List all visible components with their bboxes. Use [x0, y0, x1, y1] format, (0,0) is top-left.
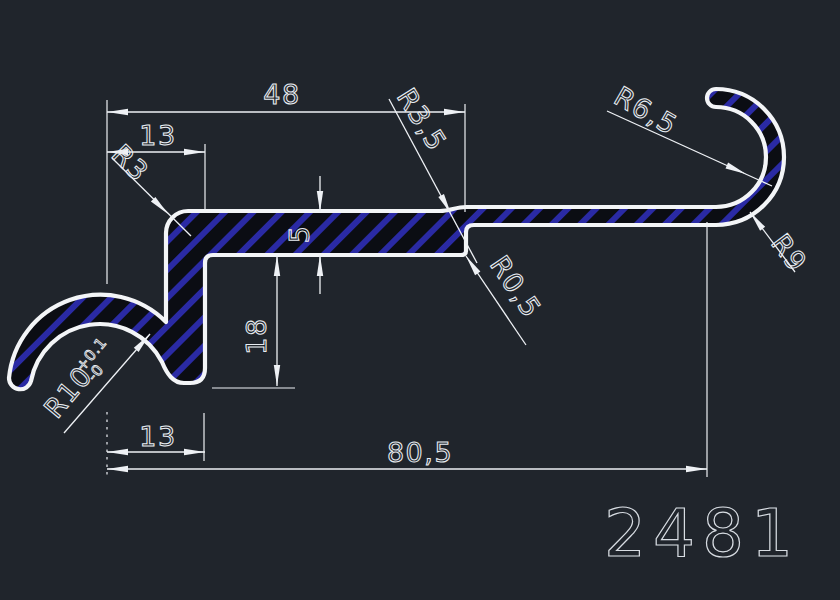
arrowhead [726, 163, 748, 177]
arrowhead [274, 365, 280, 386]
dimension-18[interactable]: 18 [241, 255, 280, 386]
arrowhead [463, 254, 480, 275]
radius-r9[interactable]: R9 [747, 210, 813, 278]
arrowhead [317, 255, 323, 276]
arrowhead [184, 449, 205, 455]
radius-r10[interactable]: R10 +0.1 -0 [38, 332, 153, 433]
arrowhead [184, 149, 205, 155]
dim-13-top-label: 13 [139, 120, 176, 151]
dim-5-label: 5 [284, 225, 315, 244]
dimension-13-bottom[interactable]: 13 [107, 421, 205, 455]
cad-drawing-canvas[interactable]: 48 13 5 18 13 80,5 R3 [0, 0, 840, 600]
leader-line [607, 111, 772, 186]
dim-48-label: 48 [263, 79, 300, 110]
part-number: 2481 [604, 495, 800, 572]
arrowhead [151, 197, 170, 216]
dim-18-label: 18 [241, 317, 272, 354]
radius-r6-5-label: R6,5 [609, 80, 683, 141]
dimension-80-5[interactable]: 80,5 [107, 437, 707, 472]
dim-80-5-label: 80,5 [387, 437, 453, 468]
arrowhead [274, 255, 280, 276]
arrowhead [444, 109, 465, 115]
arrowhead [317, 191, 323, 212]
radius-r10-label-group: R10 +0.1 -0 [38, 334, 122, 425]
arrowhead [107, 449, 128, 455]
radius-r0-5-label: R0,5 [484, 250, 548, 323]
drawing-viewport: 48 13 5 18 13 80,5 R3 [0, 0, 840, 600]
radius-r9-label: R9 [765, 228, 813, 278]
dim-13-bottom-label: 13 [139, 421, 176, 452]
radius-r0-5[interactable]: R0,5 [463, 250, 547, 345]
arrowhead [686, 466, 707, 472]
arrowhead [107, 109, 128, 115]
arrowhead [107, 466, 128, 472]
